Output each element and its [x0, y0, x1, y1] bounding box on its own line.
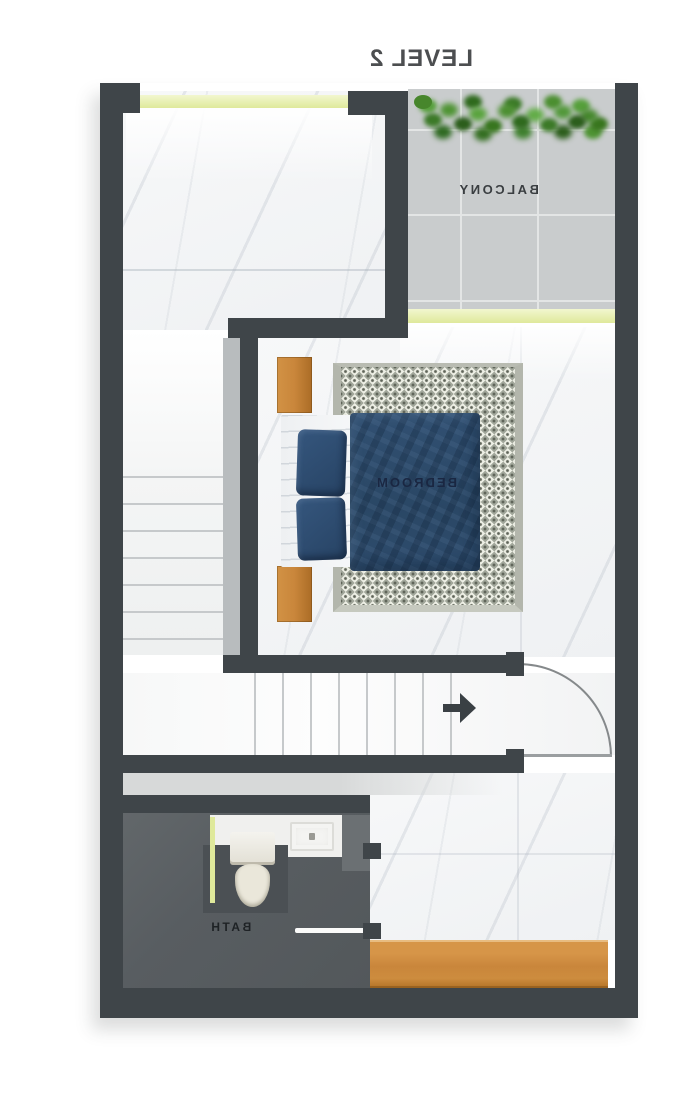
bathroom-glass-strip	[210, 817, 215, 903]
window-glow	[126, 108, 372, 183]
floor-grout-line	[123, 269, 385, 271]
bedroom-label: BEDROOM	[346, 475, 486, 490]
exterior-wall-right	[615, 83, 638, 1018]
wall-corner-top-left	[100, 83, 140, 113]
arrow-right-icon	[443, 693, 477, 721]
bath-label: BATH	[160, 920, 300, 934]
floor-grout-line	[517, 773, 519, 940]
door-jamb-top	[506, 652, 524, 676]
stair-bedroom-wall	[240, 338, 258, 673]
door-jamb-bottom	[506, 749, 524, 773]
bathroom-door-jamb-top	[363, 843, 381, 859]
floor-plan: BALCONY BEDROOM BATH	[100, 83, 638, 1018]
nightstand	[277, 357, 312, 413]
balcony-grout	[408, 300, 615, 302]
bathroom-top-wall	[123, 795, 370, 813]
exterior-wall-bottom	[100, 988, 638, 1018]
arrow-head	[460, 693, 476, 723]
bathroom-door-jamb-bottom	[363, 923, 381, 939]
stair-treads-vertical-run	[123, 451, 223, 655]
balcony-door-glass	[400, 309, 615, 323]
entry-area-floor	[370, 773, 615, 940]
plant-hedge-icon	[412, 83, 604, 137]
pillow	[296, 429, 347, 497]
bedroom-top-wall	[228, 318, 408, 338]
balcony-label: BALCONY	[428, 182, 568, 197]
door-leaf	[518, 754, 612, 757]
hallway-bottom-wall	[112, 755, 518, 773]
level-title: LEVEL 2	[356, 45, 486, 75]
bathroom-door-leaf	[295, 928, 371, 933]
arrow-shaft	[443, 704, 460, 712]
balcony-grout	[408, 214, 615, 216]
sink-icon	[290, 822, 334, 851]
stair-half-wall	[223, 338, 240, 673]
toilet-icon	[230, 832, 275, 865]
bedroom-bottom-wall	[223, 655, 518, 673]
nightstand	[277, 566, 312, 622]
landing-threshold	[123, 773, 518, 795]
wardrobe-wood	[370, 940, 608, 988]
faucet	[309, 833, 315, 840]
exterior-wall-left	[100, 83, 123, 1018]
stair-treads-horizontal-run	[228, 673, 452, 755]
bed-duvet	[350, 413, 480, 571]
floor-grout-line	[370, 853, 615, 855]
window-strip-top	[128, 95, 350, 108]
pillow	[296, 497, 347, 561]
balcony-divider-wall	[385, 91, 408, 331]
